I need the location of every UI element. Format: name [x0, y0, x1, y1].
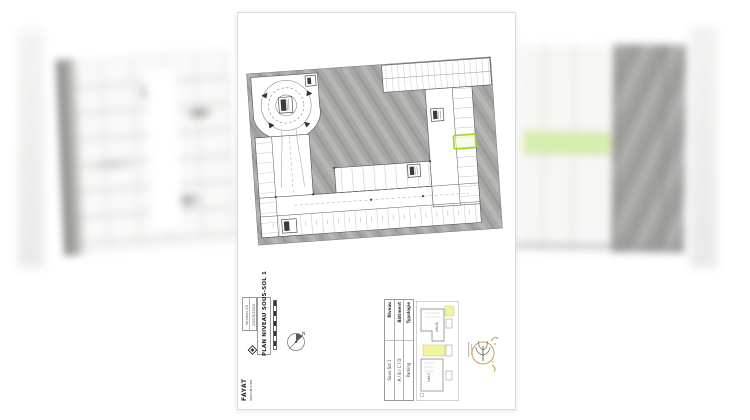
fayat-diamond-icon: [241, 345, 263, 358]
gallery-prev-image[interactable]: [56, 48, 236, 256]
info-col-niveau: Niveau Sous-Sol 1: [385, 300, 395, 400]
project-logo-icon: [464, 333, 498, 373]
stair-core-bottom-left: [282, 219, 298, 234]
info-label: Typologie: [404, 300, 414, 340]
drawing-sheet-image[interactable]: Version 00 25/09/2024 PLAN NIVEAU SOUS-S…: [237, 12, 516, 410]
gallery-next-image[interactable]: [516, 43, 686, 253]
keyplan-highlight-top: [445, 306, 454, 316]
stair-core-top: [305, 75, 316, 86]
keyplan-highlight-mid: [423, 345, 445, 356]
publisher-division: IMMOBILIER: [249, 359, 253, 401]
floor-plan-drawing: [246, 57, 502, 246]
keyplan-label-c: bât.C: [427, 372, 431, 382]
ramp-core-stair: [278, 97, 293, 114]
info-col-typologie: Typologie Parking: [404, 300, 413, 400]
info-label: Niveau: [385, 300, 395, 340]
info-value: A / B / C / D: [395, 340, 405, 400]
publisher-name: FAYAT: [241, 359, 249, 401]
info-label: Bâtiment: [395, 300, 405, 340]
key-plan: bât.B bât.C: [416, 301, 459, 401]
floor-plan-area: [246, 57, 502, 246]
north-arrow-icon: N: [284, 330, 308, 354]
stair-core-mid: [407, 164, 420, 177]
selected-parking-space-highlight[interactable]: [453, 134, 476, 149]
info-col-batiment: Bâtiment A / B / C / D: [395, 300, 405, 400]
gallery-edge-image-left: [18, 30, 44, 268]
blurred-table-green-row: [523, 131, 611, 155]
blurred-gray-area: [615, 44, 686, 253]
gallery-edge-image-right: [690, 26, 717, 268]
date-cell: 25/09/2024: [249, 298, 256, 330]
scale-bar: [273, 300, 277, 350]
keyplan-building-lower: [421, 359, 443, 391]
north-label: N: [302, 331, 305, 337]
info-value: Parking: [404, 340, 414, 400]
drawing-info-table: Typologie Parking Bâtiment A / B / C / D…: [384, 299, 414, 401]
info-value: Sous-Sol 1: [385, 340, 395, 400]
keyplan-label-b: bât.B: [435, 322, 439, 332]
revision-box: Version 00 25/09/2024: [242, 297, 257, 331]
publisher-logo: FAYAT IMMOBILIER: [241, 345, 263, 401]
stair-core-right: [431, 108, 444, 121]
